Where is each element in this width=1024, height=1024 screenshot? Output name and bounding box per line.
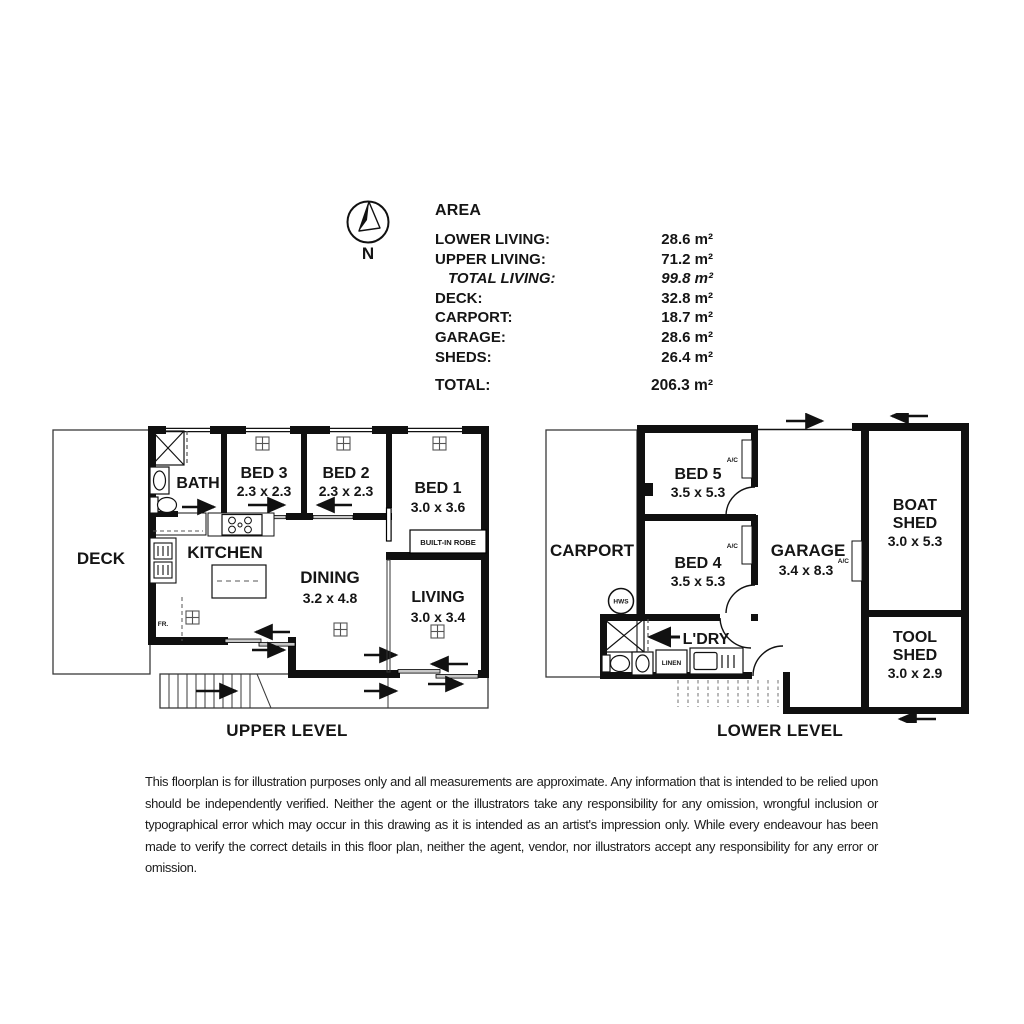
kitchen-sink-icon [150,538,176,583]
room-dims-dining: 3.2 x 4.8 [303,590,358,606]
area-row-total-living: TOTAL LIVING: 99.8 m² [435,269,713,289]
area-row-lower-living: LOWER LIVING: 28.6 m² [435,230,713,250]
ac-label-bed5: A/C [727,457,739,464]
room-label-living: LIVING [411,589,464,606]
disclaimer-text: This floorplan is for illustration purpo… [145,771,878,879]
area-row-deck: DECK: 32.8 m² [435,289,713,309]
room-label-bed4: BED 4 [674,555,721,572]
room-label-toolshed-1: TOOL [893,629,937,646]
room-label-garage: GARAGE [771,541,846,560]
room-label-laundry: L'DRY [683,631,730,648]
room-dims-bed1: 3.0 x 3.6 [411,499,466,515]
shower-icon [152,431,187,465]
room-label-kitchen: KITCHEN [187,543,263,562]
area-table: AREA LOWER LIVING: 28.6 m² UPPER LIVING:… [435,202,713,396]
fridge-label: FR. [158,621,169,628]
hws-label: HWS [613,599,629,606]
bed1-door-leaf [387,508,392,541]
room-dims-toolshed: 3.0 x 2.9 [888,665,943,681]
room-dims-bed2: 2.3 x 2.3 [319,483,374,499]
room-label-deck: DECK [77,549,126,568]
linen-label: LINEN [662,660,682,667]
room-dims-garage: 3.4 x 8.3 [779,562,834,578]
area-row-sheds: SHEDS: 26.4 m² [435,348,713,368]
understair-dashed-icon [678,680,778,707]
laundry-toilet-icon [602,655,630,672]
laundry-trough-icon [690,648,743,674]
room-dims-boatshed: 3.0 x 5.3 [888,533,943,549]
room-dims-bed4: 3.5 x 5.3 [671,573,726,589]
room-label-boatshed-1: BOAT [893,497,937,514]
stove-icon [208,513,274,536]
built-in-robe-label: BUILT-IN ROBE [420,538,476,547]
room-label-bath: BATH [176,475,219,492]
ac-label-bed4: A/C [727,543,739,550]
room-dims-bed3: 2.3 x 2.3 [237,483,292,499]
lower-level-title: LOWER LEVEL [660,721,900,741]
room-dims-bed5: 3.5 x 5.3 [671,484,726,500]
room-label-bed3: BED 3 [240,465,287,482]
room-label-bed1: BED 1 [414,480,461,497]
room-label-bed2: BED 2 [322,465,369,482]
upper-floorplan: BUILT-IN ROBE DECK BATH BED 3 2.3 x 2.3 … [48,418,493,718]
laundry-basin-icon [632,652,653,675]
vanity-basin-icon [150,467,169,494]
room-label-carport: CARPORT [550,541,635,560]
area-row-garage: GARAGE: 28.6 m² [435,328,713,348]
area-table-title: AREA [435,202,713,220]
room-label-dining: DINING [300,568,360,587]
room-dims-living: 3.0 x 3.4 [411,609,466,625]
area-row-carport: CARPORT: 18.7 m² [435,308,713,328]
area-row-upper-living: UPPER LIVING: 71.2 m² [435,250,713,270]
lower-floorplan: A/C A/C A/C LINEN HWS CARPORT BED 5 [538,413,983,723]
floorplan-page: N AREA LOWER LIVING: 28.6 m² UPPER LIVIN… [0,0,1024,1024]
compass-north-label: N [362,244,374,263]
room-label-bed5: BED 5 [674,466,721,483]
room-label-toolshed-2: SHED [893,647,937,664]
area-row-total: TOTAL: 206.3 m² [435,376,713,396]
island-bench-icon [212,565,266,598]
toilet-icon [150,497,177,514]
upper-level-title: UPPER LEVEL [167,721,407,741]
room-label-boatshed-2: SHED [893,515,937,532]
north-compass: N [343,196,393,266]
